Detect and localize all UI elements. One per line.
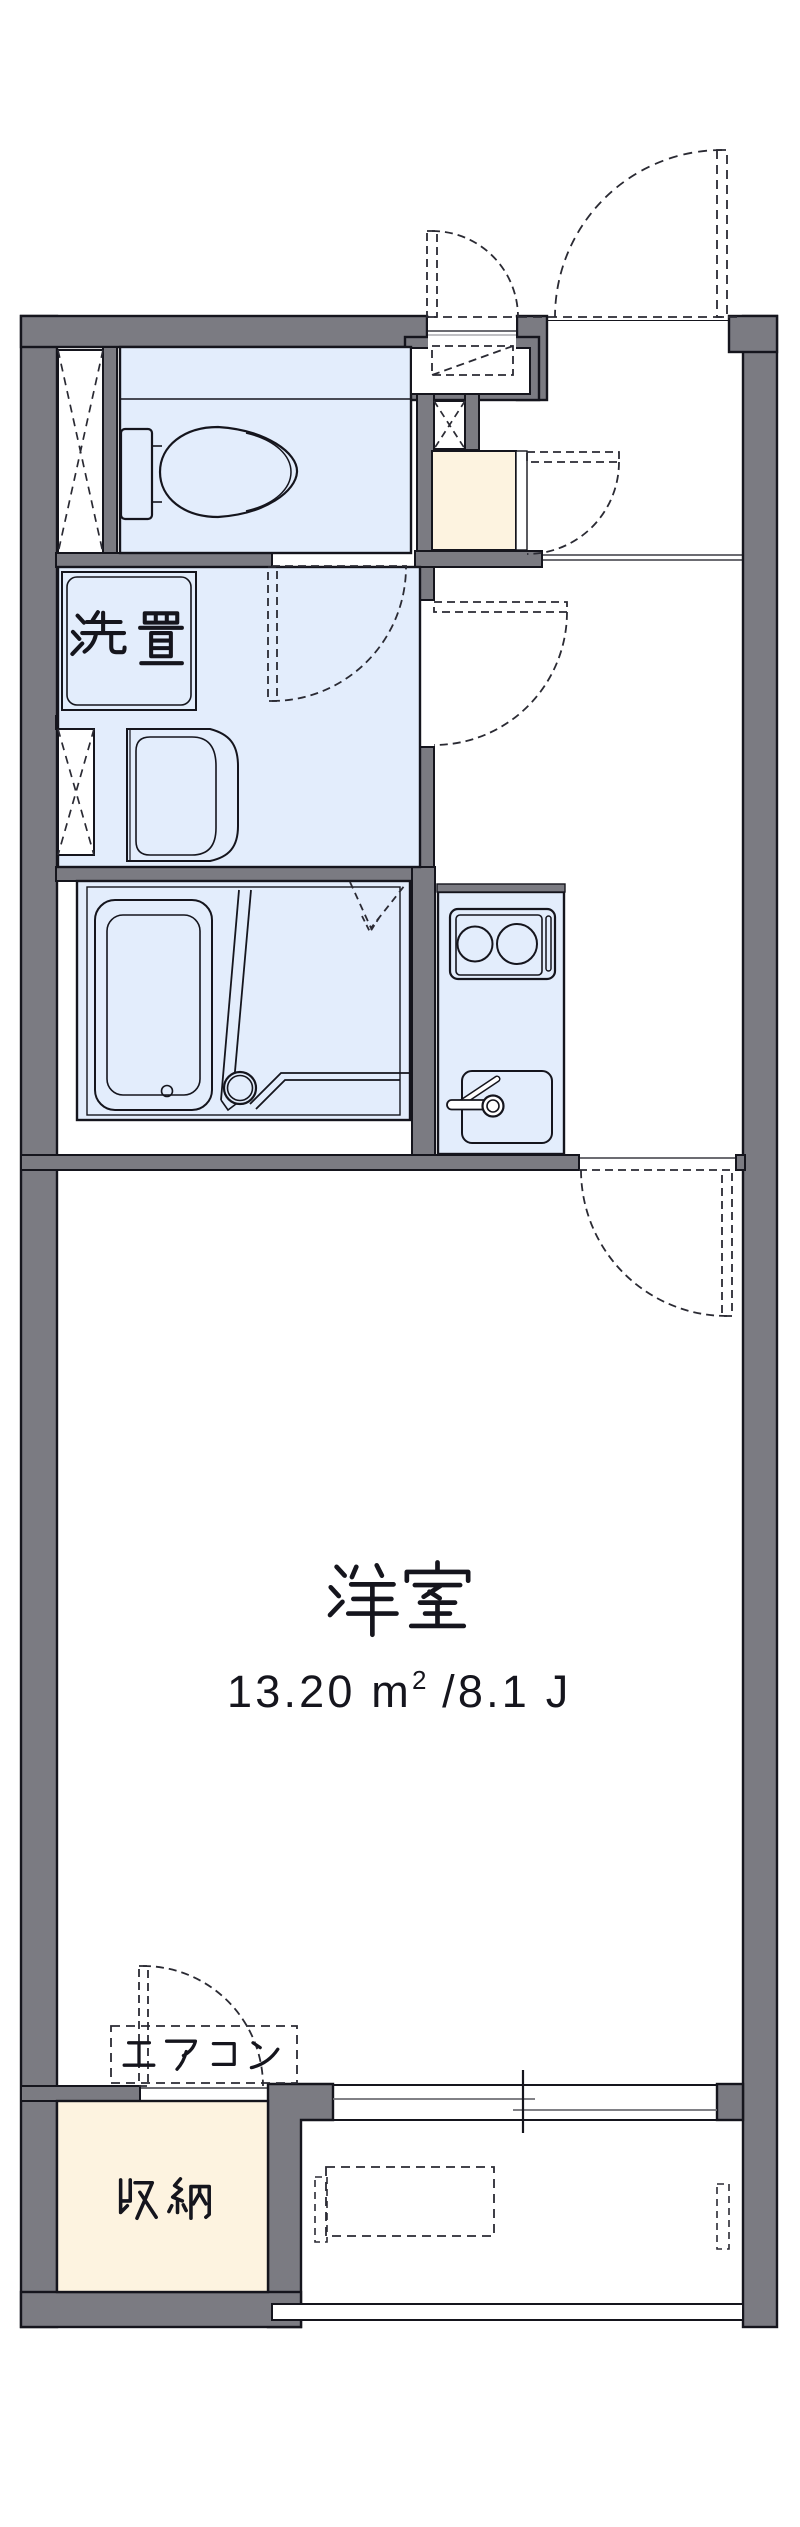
svg-text:13.20 m2 /8.1 J: 13.20 m2 /8.1 J (227, 1665, 571, 1717)
